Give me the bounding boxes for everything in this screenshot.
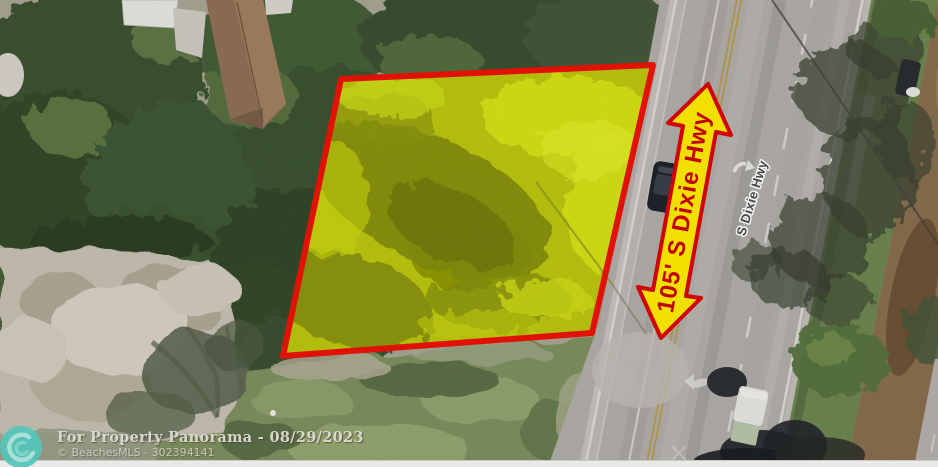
page-bottom-strip — [0, 460, 938, 467]
photo-grain — [0, 0, 938, 467]
aerial-photo-canvas: 105' S Dixie Hwy S Dixie Hwy For Propert… — [0, 0, 938, 467]
aerial-photo: 105' S Dixie Hwy S Dixie Hwy — [0, 0, 938, 467]
